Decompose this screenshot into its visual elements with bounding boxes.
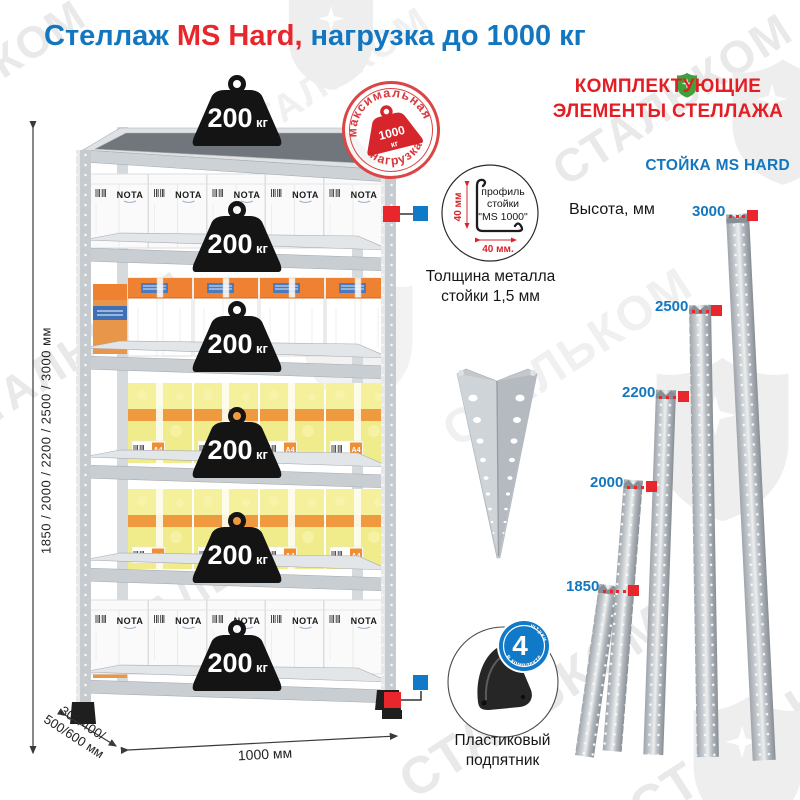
thickness-line1: Толщина металла — [426, 268, 556, 285]
marker-square — [678, 391, 689, 402]
dotted-leader — [659, 396, 676, 399]
dotted-leader — [627, 486, 644, 489]
height-marker-2000: 2000 — [590, 475, 657, 490]
dotted-leader — [603, 590, 626, 593]
height-marker-1850: 1850 — [566, 579, 639, 594]
height-value: 1850 — [566, 579, 599, 594]
profile-callout-markers — [383, 206, 428, 222]
thickness-line2: стойки 1,5 мм — [441, 288, 540, 305]
marker-square — [747, 210, 758, 221]
title-product: Стеллаж — [44, 20, 169, 52]
badge-quantity: 4 — [512, 630, 528, 661]
marker-square — [646, 481, 657, 492]
upright-perspective-view — [457, 369, 537, 558]
upright-post-2500 — [689, 305, 719, 757]
upright-post-3000 — [726, 213, 776, 760]
quantity-badge: 4 штуки в комплекте — [497, 619, 551, 673]
height-marker-2200: 2200 — [622, 385, 689, 400]
foot-label-line1: Пластиковый — [455, 732, 551, 749]
title-load-suffix: нагрузка до 1000 кг — [311, 20, 586, 52]
stand-title: СТОЙКА MS HARD — [630, 157, 790, 175]
height-value: 3000 — [692, 204, 725, 219]
dotted-leader — [729, 215, 745, 218]
profile-diagram: 40 мм 40 мм. профиль стойки "MS 1000" — [442, 165, 538, 261]
height-dimension-label: 1850 / 2000 / 2200 / 2500 / 3000 мм — [39, 291, 54, 591]
profile-label-3: "MS 1000" — [478, 211, 528, 223]
height-marker-3000: 3000 — [692, 204, 758, 219]
components-header: КОМПЛЕКТУЮЩИЕ ЭЛЕМЕНТЫ СТЕЛЛАЖА — [538, 74, 798, 125]
plastic-foot-label: Пластиковый подпятник — [420, 731, 585, 771]
height-value: 2500 — [655, 299, 688, 314]
title-model: MS Hard, — [177, 20, 303, 52]
infographic-canvas: СТАЛЬКОМ СТАЛЬКОМ СТАЛЬКОМ СТАЛЬКОМ СТАЛ… — [0, 0, 800, 800]
page-title: СтеллажMS Hard,нагрузка до 1000 кг — [44, 20, 586, 53]
marker-square — [711, 305, 722, 316]
metal-thickness-label: Толщина металла стойки 1,5 мм — [408, 267, 573, 307]
height-value: 2200 — [622, 385, 655, 400]
height-value: 2000 — [590, 475, 623, 490]
upright-post-2200 — [643, 390, 676, 755]
dotted-leader — [692, 310, 709, 313]
marker-square — [628, 585, 639, 596]
plastic-foot-diagram: 4 штуки в комплекте — [448, 619, 558, 737]
components-header-line2: ЭЛЕМЕНТЫ СТЕЛЛАЖА — [553, 101, 783, 122]
profile-label-1: профиль — [481, 186, 525, 198]
profile-dim-vertical: 40 мм — [453, 193, 464, 222]
profile-label-2: стойки — [487, 198, 519, 210]
height-marker-2500: 2500 — [655, 299, 722, 314]
height-axis-label: Высота, мм — [569, 201, 655, 219]
profile-dim-horizontal: 40 мм. — [482, 244, 514, 255]
components-header-line1: КОМПЛЕКТУЮЩИЕ — [575, 76, 762, 97]
foot-label-line2: подпятник — [466, 752, 540, 769]
